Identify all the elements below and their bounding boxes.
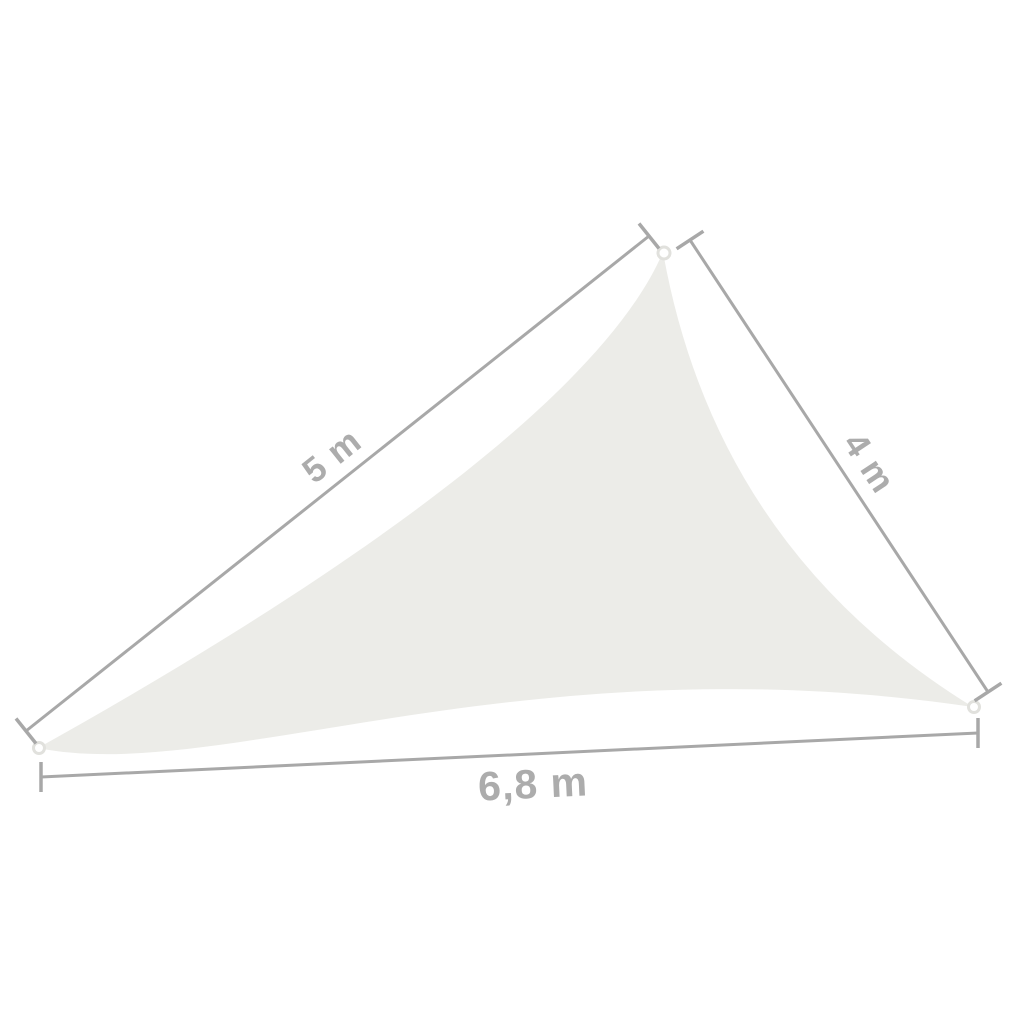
- dimension-label-6-8m: 6,8 m: [477, 758, 589, 809]
- dimension-label-5m: 5 m: [295, 421, 369, 491]
- grommet-right-icon: [969, 702, 980, 713]
- grommet-top-icon: [658, 247, 670, 259]
- shade-sail-dimension-diagram: 5 m 4 m 6,8 m: [0, 0, 1024, 1024]
- dimension-label-4m: 4 m: [835, 426, 902, 500]
- shade-sail-shape: [38, 252, 973, 754]
- diagram-canvas: 5 m 4 m 6,8 m: [0, 0, 1024, 1024]
